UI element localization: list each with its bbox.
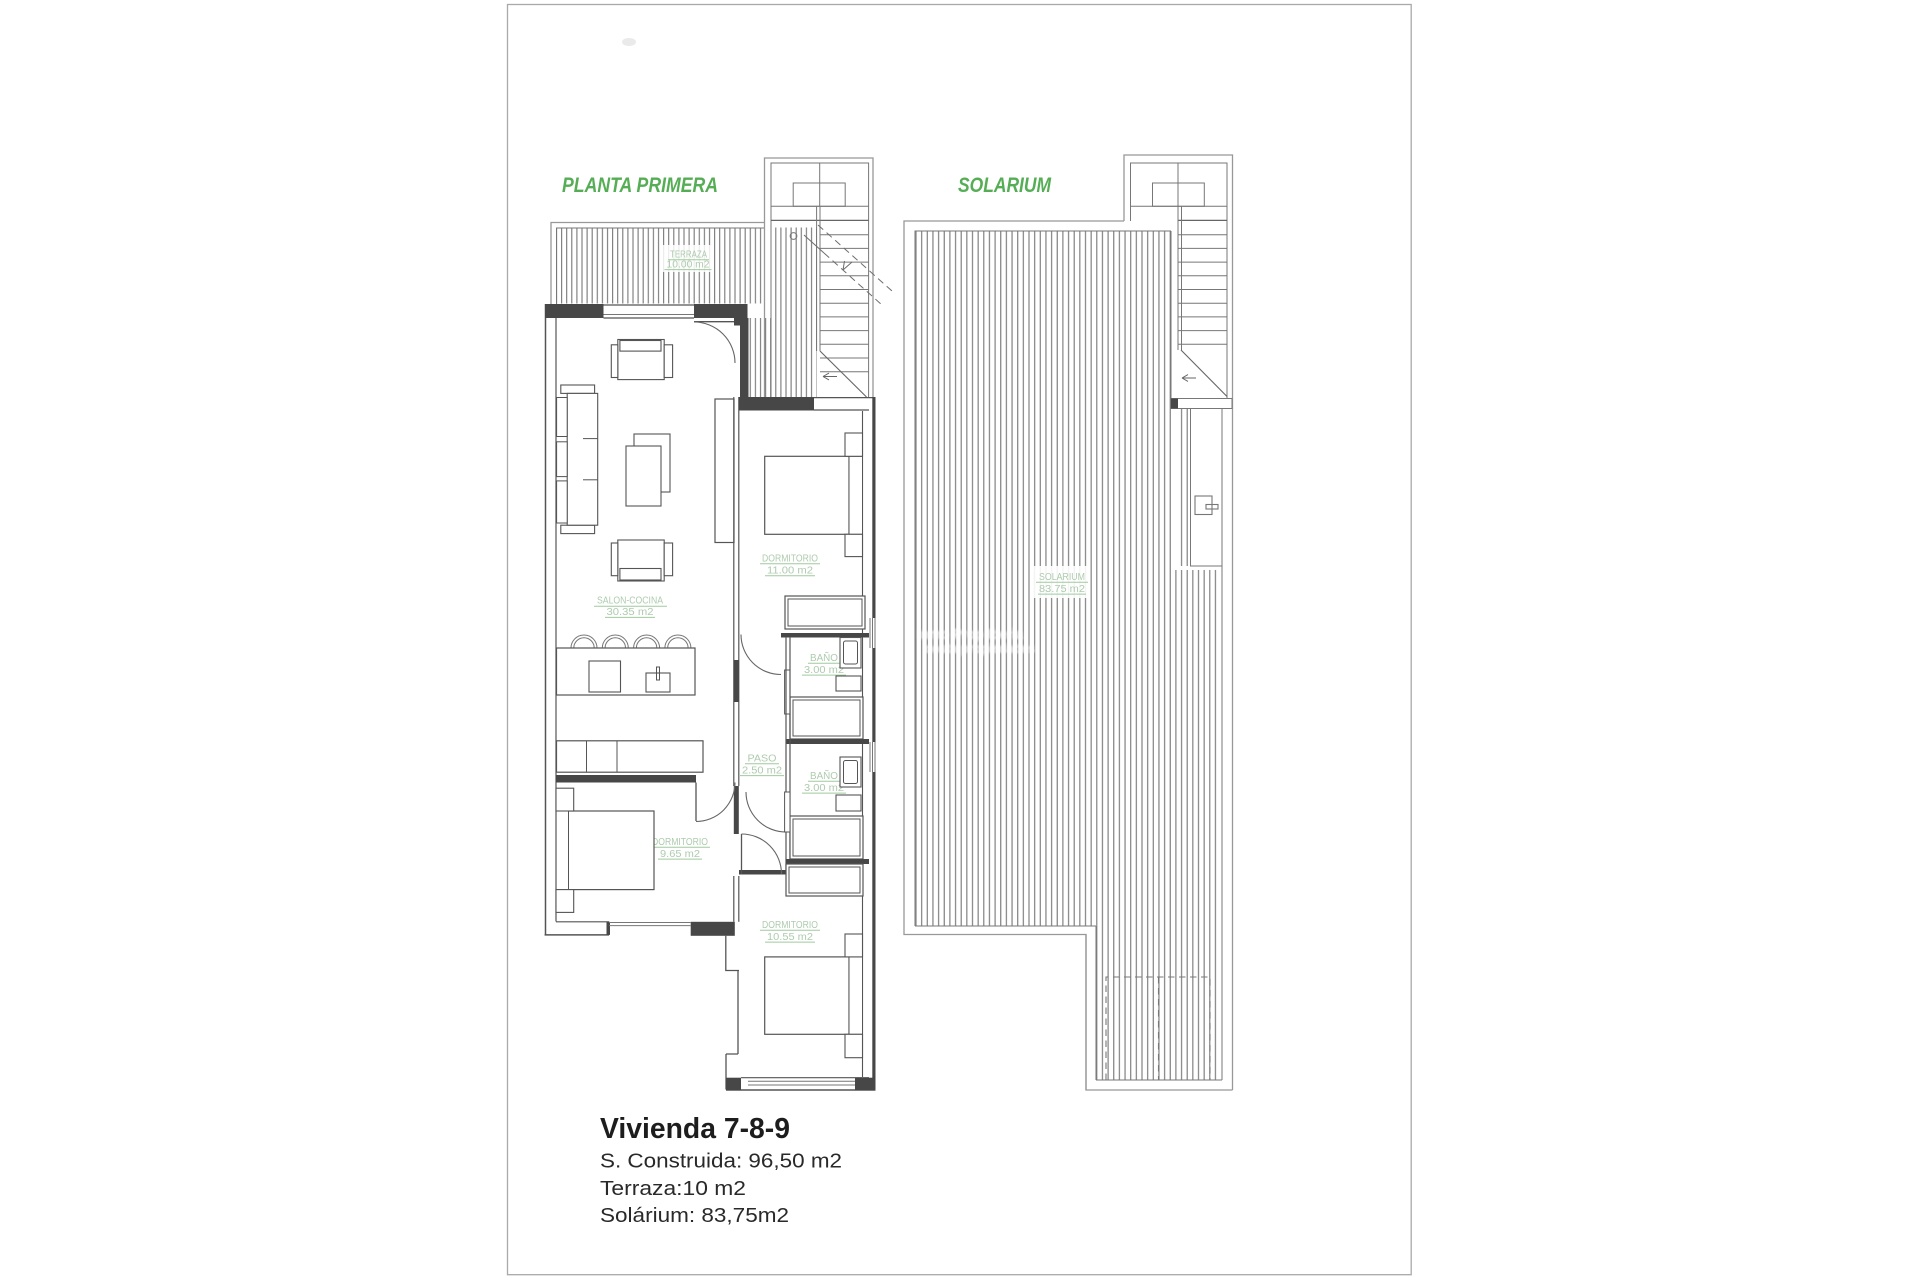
svg-text:DORMITORIO: DORMITORIO xyxy=(762,920,818,931)
svg-text:9.65 m2: 9.65 m2 xyxy=(660,849,700,860)
svg-text:PASO: PASO xyxy=(748,754,777,765)
svg-text:costa propiedades: costa propiedades xyxy=(925,640,1035,656)
svg-text:Vivienda 7-8-9: Vivienda 7-8-9 xyxy=(600,1113,790,1145)
svg-text:DORMITORIO: DORMITORIO xyxy=(762,554,818,565)
svg-text:3.00 m2: 3.00 m2 xyxy=(804,783,844,794)
svg-text:11.00 m2: 11.00 m2 xyxy=(767,566,813,577)
svg-text:2.50 m2: 2.50 m2 xyxy=(742,765,782,776)
svg-text:SOLARIUM: SOLARIUM xyxy=(1039,572,1085,583)
svg-text:10.00 m2: 10.00 m2 xyxy=(667,259,710,270)
svg-text:SOLARIUM: SOLARIUM xyxy=(958,174,1051,197)
svg-text:10.55 m2: 10.55 m2 xyxy=(767,932,813,943)
svg-text:Terraza:10 m2: Terraza:10 m2 xyxy=(600,1177,746,1200)
svg-text:PLANTA PRIMERA: PLANTA PRIMERA xyxy=(562,174,718,197)
svg-text:30.35 m2: 30.35 m2 xyxy=(607,607,654,618)
svg-text:DORMITORIO: DORMITORIO xyxy=(652,837,708,848)
svg-text:83.75 m2: 83.75 m2 xyxy=(1039,584,1085,595)
svg-text:BAÑO: BAÑO xyxy=(810,769,838,782)
svg-text:3.00 m2: 3.00 m2 xyxy=(804,665,844,676)
svg-text:Solárium: 83,75m2: Solárium: 83,75m2 xyxy=(600,1204,789,1227)
svg-text:SALON-COCINA: SALON-COCINA xyxy=(597,596,663,607)
svg-text:S. Construida: 96,50 m2: S. Construida: 96,50 m2 xyxy=(600,1150,842,1173)
svg-text:BAÑO: BAÑO xyxy=(810,651,838,664)
